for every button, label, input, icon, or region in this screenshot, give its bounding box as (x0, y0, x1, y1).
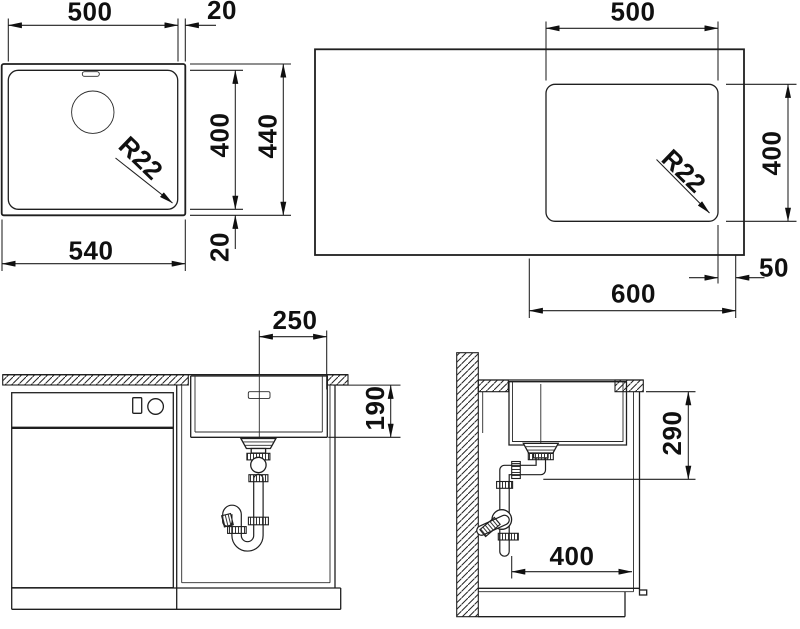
dimensions-side-section: 290 400 (512, 392, 696, 579)
dim-drain-depth-label: 400 (550, 541, 595, 571)
dim-corner-radius-label: R22 (656, 143, 712, 199)
dim-rim-bottom-label: 20 (205, 232, 235, 262)
plan-view-sink: 500 20 400 440 20 540 R22 (2, 0, 291, 271)
dimensions-countertop-plan: 500 400 R22 50 600 (529, 0, 796, 318)
sink-cabinet-front (12, 385, 341, 609)
dim-rim-right-label: 20 (207, 0, 237, 25)
drain-trap-front (222, 439, 276, 547)
overflow-slot (82, 72, 99, 77)
door-bottom-edge (640, 590, 647, 595)
dim-bowl-width-label: 500 (68, 0, 113, 27)
sink-bowl-front (191, 376, 328, 438)
dim-overall-depth-label: 440 (253, 114, 283, 159)
dimensions-sink-plan: 500 20 400 440 20 540 R22 (2, 0, 291, 271)
dim-cabinet-width-label: 600 (611, 279, 656, 309)
drain-trap-side (480, 443, 558, 551)
dishwasher-panel-icon (133, 398, 142, 414)
dim-drain-offset-label: 250 (273, 305, 318, 335)
dim-bowl-height-label: 190 (360, 386, 390, 431)
countertop-section-left (3, 375, 189, 385)
cutout-outline (546, 84, 718, 221)
drain-hole (72, 91, 114, 133)
plan-view-countertop: 500 400 R22 50 600 (315, 0, 797, 318)
ball-joint (251, 457, 266, 472)
wall-section (457, 353, 479, 617)
dim-cutout-depth-label: 400 (757, 131, 787, 176)
countertop-section-back (478, 380, 508, 392)
drawing-sheet: 500 20 400 440 20 540 R22 500 (0, 0, 800, 629)
front-section-view: 250 190 (3, 305, 401, 609)
dishwasher-cabinet (12, 393, 174, 588)
dim-clearance-height-label: 290 (657, 411, 687, 456)
dim-cutout-width-label: 500 (611, 0, 656, 27)
technical-drawing: 500 20 400 440 20 540 R22 500 (0, 0, 800, 629)
dim-bowl-depth-label: 400 (205, 113, 235, 158)
sink-outer-edge (2, 64, 186, 215)
side-section-view: 290 400 (457, 353, 696, 617)
countertop-section-right (327, 375, 348, 385)
dim-corner-radius-label: R22 (113, 130, 169, 186)
sink-bowl-side (508, 382, 627, 446)
dim-overall-width-label: 540 (69, 236, 114, 266)
dim-edge-clearance-label: 50 (759, 253, 789, 283)
dishwasher-knob-icon (148, 399, 164, 415)
